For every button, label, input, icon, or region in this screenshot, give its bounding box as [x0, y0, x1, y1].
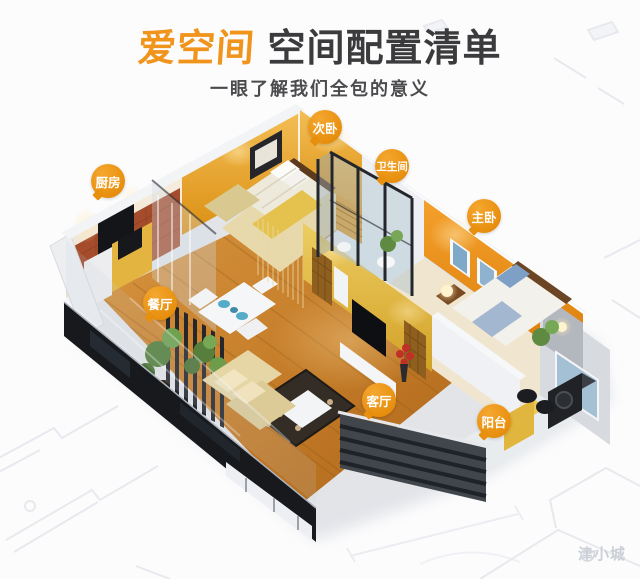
room-badge-dining: 餐厅 [143, 286, 177, 320]
badge-label: 客厅 [366, 391, 391, 410]
badge-label: 卫生间 [376, 159, 408, 174]
badge-label: 主卧 [471, 207, 496, 226]
badge-label: 次卧 [312, 118, 337, 137]
room-badge-kitchen: 厨房 [91, 164, 125, 198]
badge-label: 厨房 [95, 172, 120, 191]
brand-logo-text: 爱空间 [137, 28, 257, 70]
room-badge-living: 客厅 [362, 383, 396, 417]
badge-label: 餐厅 [147, 294, 172, 313]
page-title-text: 空间配置清单 [268, 28, 502, 70]
room-badge-bathroom: 卫生间 [375, 149, 409, 183]
badge-label: 阳台 [481, 412, 506, 431]
mascot-face-icon [578, 543, 598, 563]
watermark: 津小城 [578, 543, 626, 564]
room-badge-second-bedroom: 次卧 [308, 110, 342, 144]
room-badge-master-bedroom: 主卧 [467, 199, 501, 233]
page-subtitle: 一眼了解我们全包的意义 [0, 75, 640, 101]
room-badge-balcony: 阳台 [477, 404, 511, 438]
page-title: 爱空间空间配置清单 [0, 28, 640, 70]
header: 爱空间空间配置清单 一眼了解我们全包的意义 [0, 28, 640, 101]
page: 爱空间空间配置清单 一眼了解我们全包的意义 厨房 次卧 卫生间 主卧 餐厅 客厅… [0, 0, 640, 579]
